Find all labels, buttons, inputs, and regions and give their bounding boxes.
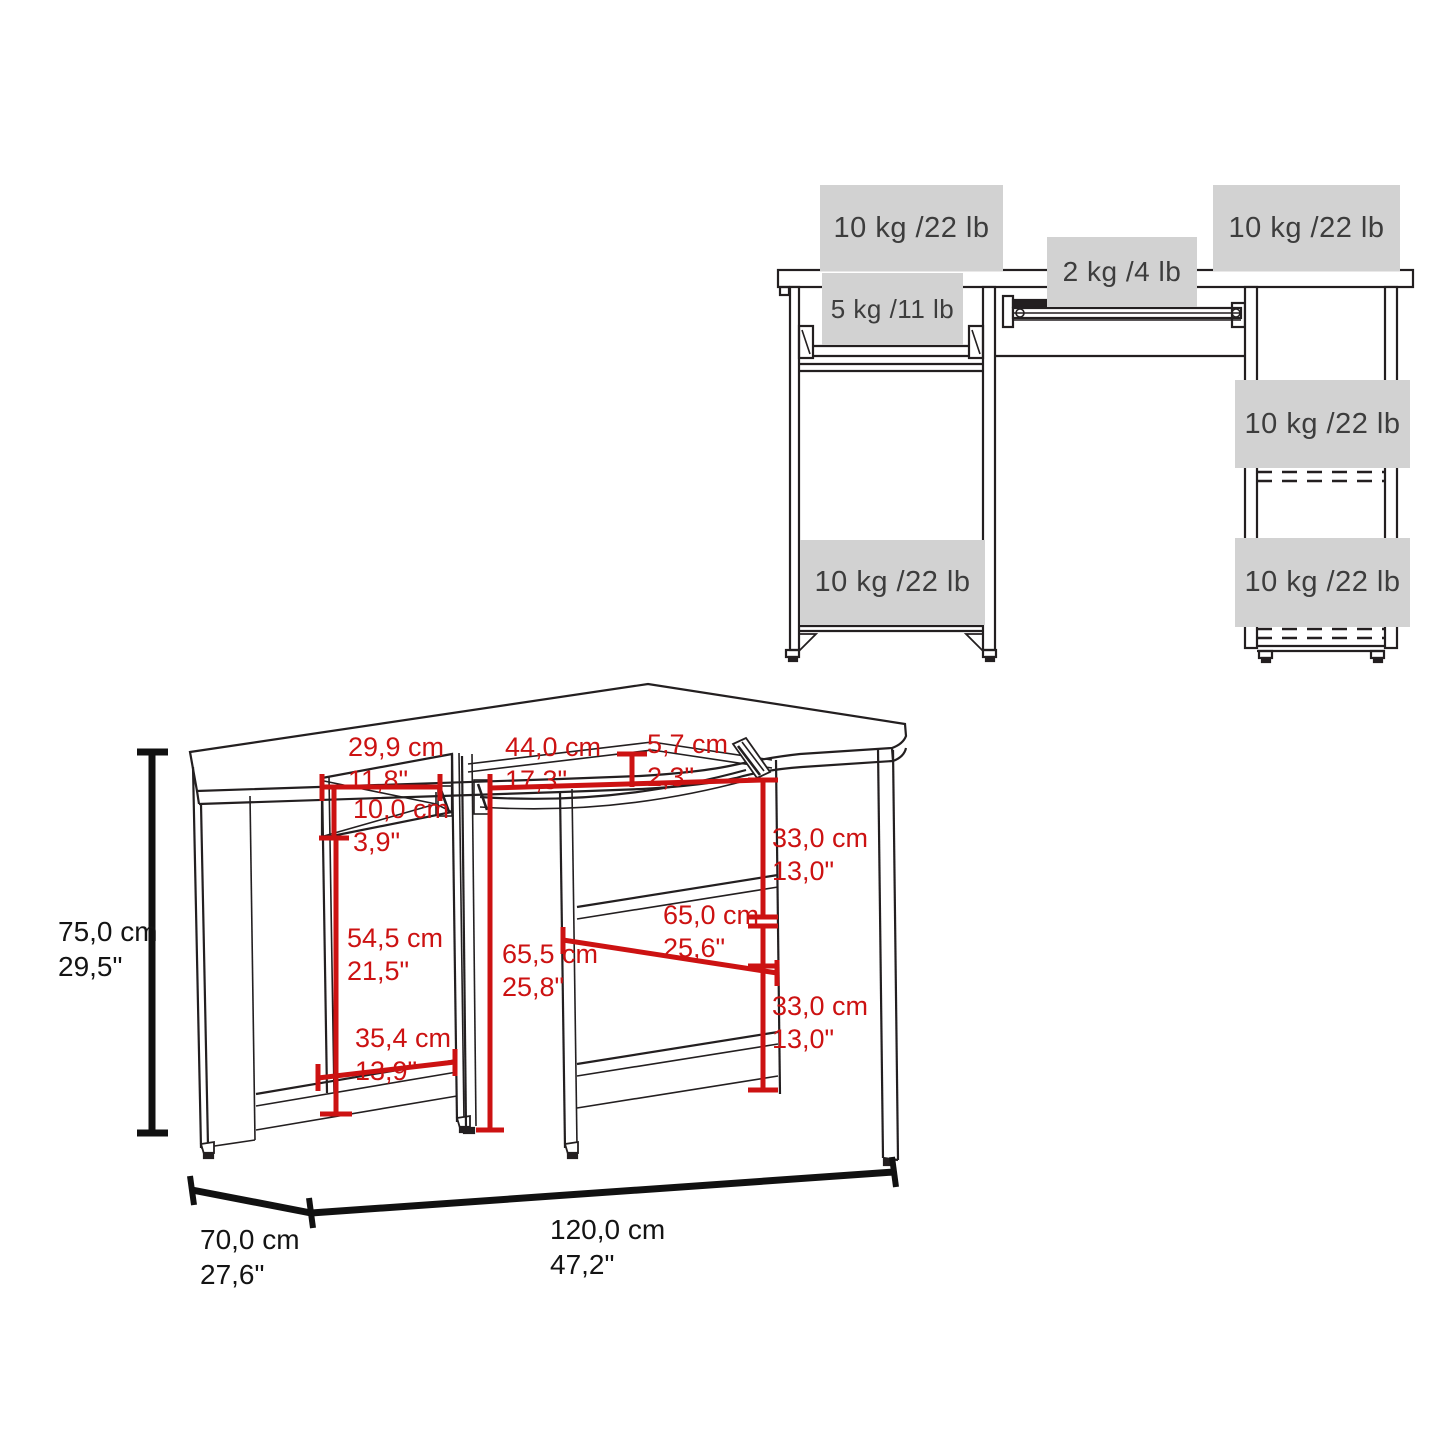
dim-label-right-shelf-width: 65,0 cm 25,6" — [663, 899, 759, 965]
weight-label-desktop-left: 10 kg /22 lb — [820, 185, 1003, 271]
dim-label-right-upper-shelf-height: 33,0 cm 13,0" — [772, 822, 868, 888]
weight-label-right-shelf-bottom: 10 kg /22 lb — [1235, 538, 1410, 627]
product-dimension-sheet: 10 kg /22 lb 2 kg /4 lb 10 kg /22 lb 5 k… — [0, 0, 1445, 1445]
weight-label-text: 2 kg /4 lb — [1063, 256, 1182, 288]
dim-label-left-compartment-height: 54,5 cm 21,5" — [347, 922, 443, 988]
weight-label-tray-left: 5 kg /11 lb — [822, 273, 963, 345]
weight-label-tray-center: 2 kg /4 lb — [1047, 237, 1197, 307]
weight-label-desktop-right: 10 kg /22 lb — [1213, 185, 1400, 271]
dim-label-desk-edge-height: 5,7 cm 2,3" — [647, 728, 728, 794]
weight-label-left-shelf-bottom: 10 kg /22 lb — [800, 540, 985, 625]
dim-label-overall-depth: 70,0 cm 27,6" — [200, 1222, 300, 1292]
dim-label-overall-width: 120,0 cm 47,2" — [550, 1212, 665, 1282]
dim-label-left-compartment-width: 35,4 cm 13,9" — [355, 1022, 451, 1088]
dim-label-tray-center-width: 44,0 cm 17,3" — [505, 731, 601, 797]
weight-label-text: 5 kg /11 lb — [831, 294, 955, 325]
weight-label-text: 10 kg /22 lb — [1245, 408, 1401, 441]
weight-label-text: 10 kg /22 lb — [1245, 566, 1401, 599]
weight-label-right-shelf-upper: 10 kg /22 lb — [1235, 380, 1410, 468]
weight-label-text: 10 kg /22 lb — [1229, 212, 1385, 245]
weight-label-text: 10 kg /22 lb — [834, 212, 990, 245]
dim-label-right-lower-shelf-height: 33,0 cm 13,0" — [772, 990, 868, 1056]
dim-label-tray-left-width: 29,9 cm 11,8" — [348, 731, 444, 797]
dim-label-under-desk-height: 65,5 cm 25,8" — [502, 938, 598, 1004]
dim-label-tray-left-height: 10,0 cm 3,9" — [353, 793, 449, 859]
weight-label-text: 10 kg /22 lb — [815, 566, 971, 599]
dim-label-overall-height: 75,0 cm 29,5" — [58, 914, 158, 984]
